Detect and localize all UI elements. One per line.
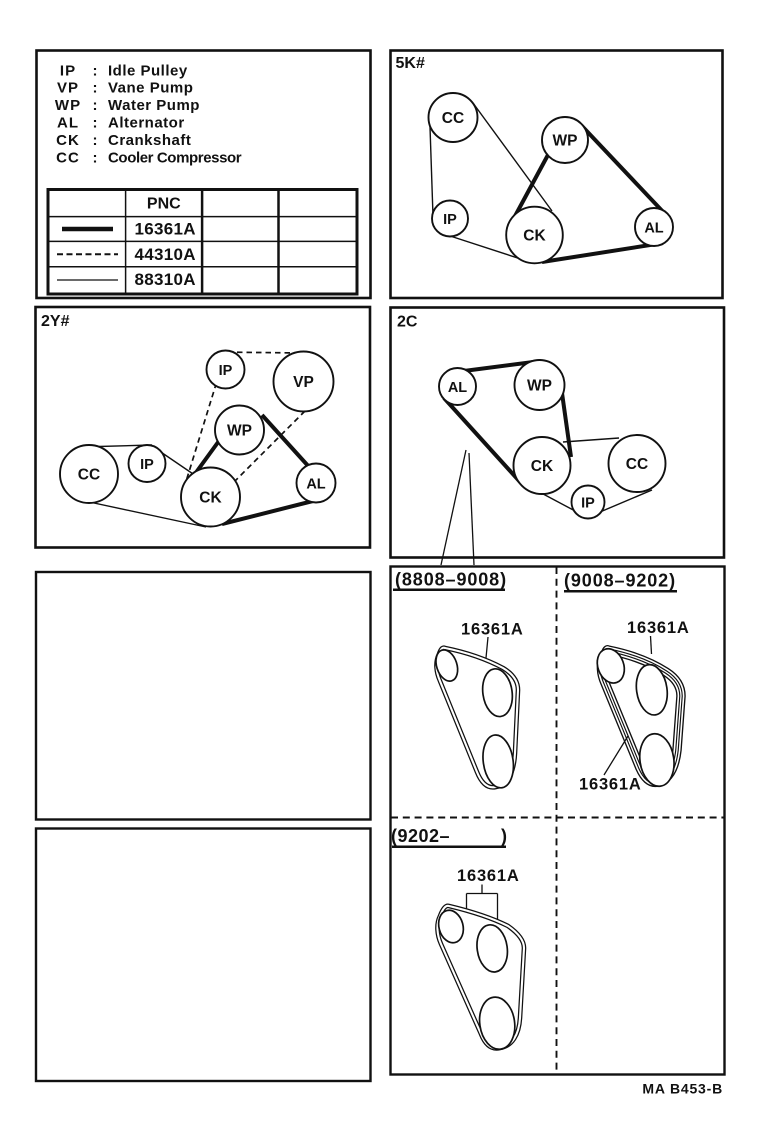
svg-text:(9008–9202): (9008–9202) <box>564 571 676 591</box>
svg-text:IP: IP <box>60 62 76 79</box>
svg-text:88310A: 88310A <box>135 270 196 289</box>
svg-text:AL: AL <box>57 115 79 132</box>
svg-text:IP: IP <box>140 457 154 473</box>
svg-text:CK: CK <box>56 132 80 149</box>
svg-text:2Y#: 2Y# <box>41 313 70 330</box>
svg-text:(8808–9008): (8808–9008) <box>395 570 507 590</box>
svg-text:16361A: 16361A <box>579 776 642 794</box>
svg-text:IP: IP <box>219 363 233 379</box>
svg-text:AL: AL <box>306 477 325 493</box>
svg-text::: : <box>93 149 98 166</box>
svg-text:CK: CK <box>199 490 222 507</box>
svg-text::: : <box>93 80 98 97</box>
svg-text:PNC: PNC <box>147 196 181 213</box>
svg-text::: : <box>93 97 98 114</box>
svg-text::: : <box>93 132 98 149</box>
svg-text:MA B453-B: MA B453-B <box>642 1081 723 1097</box>
svg-text:AL: AL <box>644 221 663 237</box>
svg-text:WP: WP <box>553 133 578 150</box>
svg-text:CC: CC <box>78 467 100 484</box>
svg-text:Alternator: Alternator <box>108 115 185 132</box>
svg-text:VP: VP <box>293 374 314 391</box>
svg-text::: : <box>93 115 98 132</box>
svg-text:Cooler Compressor: Cooler Compressor <box>108 149 242 166</box>
svg-text:5K#: 5K# <box>396 55 425 72</box>
svg-text:Idle Pulley: Idle Pulley <box>108 62 188 79</box>
svg-text:16361A: 16361A <box>627 619 690 637</box>
svg-text:Crankshaft: Crankshaft <box>108 132 191 149</box>
svg-text:(9202–: (9202– <box>391 826 450 846</box>
svg-text:WP: WP <box>55 97 81 114</box>
svg-text:44310A: 44310A <box>135 245 196 264</box>
svg-text:IP: IP <box>581 496 595 512</box>
svg-text:IP: IP <box>443 212 457 228</box>
svg-text:CC: CC <box>56 149 80 166</box>
svg-text:16361A: 16361A <box>135 220 196 239</box>
svg-text:Water Pump: Water Pump <box>108 97 200 114</box>
svg-text:VP: VP <box>57 80 79 97</box>
svg-text:WP: WP <box>527 378 552 395</box>
svg-text::: : <box>93 62 98 79</box>
svg-text:AL: AL <box>448 380 467 396</box>
svg-text:2C: 2C <box>397 314 418 331</box>
svg-text:16361A: 16361A <box>461 621 524 639</box>
svg-text:): ) <box>501 826 507 846</box>
svg-text:WP: WP <box>227 423 252 440</box>
svg-text:CC: CC <box>626 456 648 473</box>
svg-text:16361A: 16361A <box>457 867 520 885</box>
svg-text:CK: CK <box>523 228 546 245</box>
svg-text:Vane Pump: Vane Pump <box>108 80 193 97</box>
svg-text:CC: CC <box>442 110 464 127</box>
svg-text:CK: CK <box>531 458 554 475</box>
